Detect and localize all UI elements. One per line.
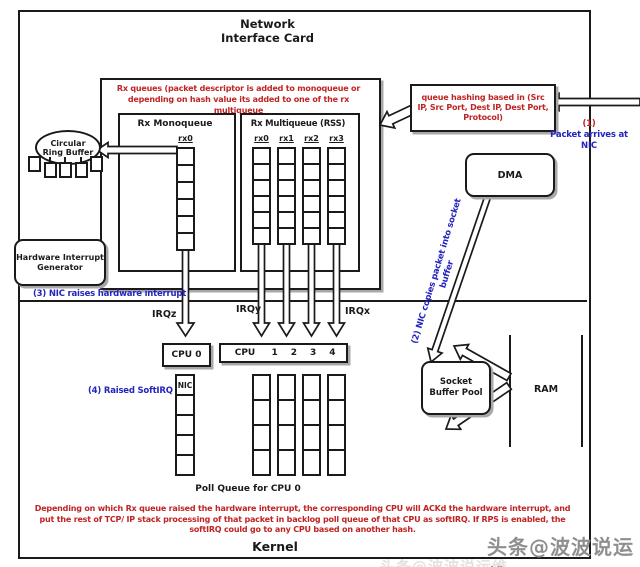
poll-queue-cpu0-cell [175,394,195,416]
cpu-row-num-1: 1 [265,348,284,358]
ram-label: RAM [509,384,583,395]
poll-queue-cpu4 [327,374,346,476]
kernel-label: Kernel [225,539,325,554]
poll-queue-cpu1-cell [252,449,271,476]
irq-x-label: IRQx [345,306,370,317]
socket-buffer-pool-label: Socket Buffer Pool [429,377,482,399]
nic-title: Network Interface Card [185,17,350,45]
step1-number: (1) [582,119,595,129]
watermark: 头条@波波说运维 [487,531,640,567]
poll-queue-cpu2 [277,374,296,476]
poll-queue-cpu0-cell [175,414,195,436]
step1-text: Packet arrives at [550,130,628,140]
poll-queue-cpu1-cell [252,374,271,401]
rx-multi-queue-rx2-cell [302,227,321,245]
cpu-row-box: CPU1234 [219,343,348,363]
poll-queue-cpu3-cell [302,424,321,451]
rx-mono-queue-rx0-label: rx0 [170,134,201,143]
rx-multi-queue-rx0 [252,147,271,245]
poll-queue-cpu0-label: Poll Queue for CPU 0 [168,484,328,494]
ring-buffer-slot [44,162,57,178]
cpu-row-num-3: 3 [304,348,323,358]
dma-label: DMA [498,170,523,181]
rx-multi-queue-rx3-label: rx3 [321,134,352,143]
rx-multi-queue-rx1-cell [277,227,296,245]
poll-queue-cpu2-cell [277,449,296,476]
ring-buffer-slot-link [49,157,51,163]
rx-multi-queue-rx1 [277,147,296,245]
cpu-row-title: CPU [225,348,265,358]
cpu-row-num-4: 4 [323,348,342,358]
irq-z-label: IRQz [152,309,176,320]
poll-queue-cpu4-cell [327,399,346,426]
rx-multi-queue-rx3-cell [327,227,346,245]
poll-queue-cpu0-cell [175,454,195,476]
hw-interrupt-generator-box: Hardware Interrupt Generator [14,239,106,286]
cpu0-box: CPU 0 [162,343,211,367]
nic-kernel-divider [18,300,587,302]
cpu0-label: CPU 0 [172,350,202,360]
poll-queue-cpu4-cell [327,449,346,476]
step1-text2: NIC [538,141,640,152]
ring-buffer-slot-link [80,157,82,163]
poll-queue-cpu1 [252,374,271,476]
queue-hashing-label: queue hashing based in (Src IP, Src Port… [417,93,548,123]
poll-queue-cpu3-cell [302,374,321,401]
poll-queue-cpu3-cell [302,449,321,476]
poll-queue-cpu1-cell [252,399,271,426]
rx-mono-queue-rx0-cell [176,232,195,251]
step3-label: (3) NIC raises hardware interrupt [33,289,253,299]
ring-buffer-slot [28,156,41,172]
rx-multi-queue-rx2 [302,147,321,245]
poll-queue-cpu4-cell [327,424,346,451]
diagram-stage: Network Interface Card Rx queues (packet… [0,0,640,567]
poll-queue-cpu2-cell [277,399,296,426]
queue-hashing-box: queue hashing based in (Src IP, Src Port… [410,84,556,132]
cpu-row-num-2: 2 [284,348,303,358]
hw-interrupt-generator-label: Hardware Interrupt Generator [16,253,104,273]
ring-buffer-slot-link [64,157,66,163]
poll-queue-cpu0: NIC [175,374,195,476]
step1-label: (1) Packet arrives at NIC [538,108,640,163]
poll-queue-cpu2-cell [277,424,296,451]
ring-buffer-slot [75,162,88,178]
poll-queue-cpu2-cell [277,374,296,401]
rx-multi-queue-rx3 [327,147,346,245]
poll-queue-cpu0-cell: NIC [175,374,195,396]
step4-label: (4) Raised SoftIRQ [88,386,183,396]
poll-queue-cpu3-cell [302,399,321,426]
socket-buffer-pool-box: Socket Buffer Pool [421,361,491,415]
rx-multiqueue-title: Rx Multiqueue (RSS) [240,119,356,129]
ring-buffer-slot [90,156,103,172]
poll-queue-cpu3 [302,374,321,476]
rx-monoqueue-title: Rx Monoqueue [120,119,230,129]
poll-queue-cpu0-cell [175,434,195,456]
rx-multi-queue-rx0-cell [252,227,271,245]
rx-queues-note: Rx queues (packet descriptor is added to… [103,83,374,116]
rx-mono-queue-rx0 [176,147,195,251]
irq-y-label: IRQy [236,304,261,315]
watermark-faint: 头条@波波说运维 [380,556,508,567]
ring-buffer-slot [59,162,72,178]
circular-ring-buffer-label: Circular Ring Buffer [43,139,94,157]
poll-queue-cpu1-cell [252,424,271,451]
poll-queue-cpu4-cell [327,374,346,401]
